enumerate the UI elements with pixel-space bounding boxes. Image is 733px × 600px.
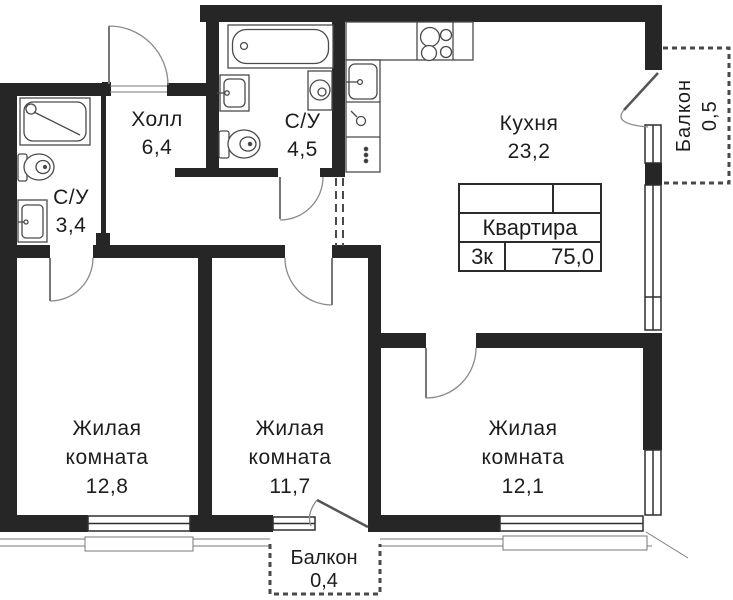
room-label-living-left: Жилая комната 12,8 xyxy=(33,414,181,501)
washer-door-inner xyxy=(318,88,326,96)
living-left-name-1: Жилая xyxy=(33,414,181,443)
kitchen-balcony-door-arc xyxy=(621,110,648,127)
hall-name: Холл xyxy=(95,106,219,134)
stove-burner-small xyxy=(441,30,452,41)
bathroom-large-name: С/У xyxy=(255,108,350,136)
living-right-area: 12,1 xyxy=(449,472,597,501)
toilet-su34 xyxy=(18,154,54,181)
living-middle-area: 11,7 xyxy=(216,472,364,501)
floor-plan-drawing xyxy=(0,0,733,600)
living-middle-name-2: комната xyxy=(216,443,364,472)
apartment-rooms-count: 3к xyxy=(460,243,506,270)
living-right-name-1: Жилая xyxy=(449,414,597,443)
open-boundary-dashed xyxy=(336,178,343,246)
room-label-balcony-bottom: Балкон 0,4 xyxy=(268,547,380,593)
kitchen-area: 23,2 xyxy=(468,138,590,166)
toilet-drain xyxy=(248,142,251,145)
balcony-bottom-area: 0,4 xyxy=(268,570,380,593)
wall-bottom-c xyxy=(368,515,500,532)
shower-tray xyxy=(20,98,90,145)
room-label-kitchen: Кухня 23,2 xyxy=(468,110,590,166)
stove-burner-small xyxy=(441,47,452,58)
ledge-room-right xyxy=(503,536,647,550)
wall-top xyxy=(200,5,662,22)
room-label-living-middle: Жилая комната 11,7 xyxy=(216,414,364,501)
sink-su45 xyxy=(217,75,249,111)
info-table-blank-row xyxy=(460,185,600,214)
bathtub xyxy=(228,25,333,68)
apartment-total-area: 75,0 xyxy=(506,243,600,270)
wall-right-mid xyxy=(645,163,662,185)
room-label-bathroom-small: С/У 3,4 xyxy=(24,184,118,240)
kitchen-name: Кухня xyxy=(468,110,590,138)
info-table-values-row: 3к 75,0 xyxy=(460,243,600,270)
living-right-name-2: комната xyxy=(449,443,597,472)
apartment-info-table: Квартира 3к 75,0 xyxy=(458,183,602,272)
wall-left xyxy=(0,83,17,532)
kitchen-faucet-knob xyxy=(358,80,363,85)
wall-right-room121 xyxy=(643,333,662,450)
bathtub-drain xyxy=(241,43,248,50)
su45-door-arc xyxy=(280,177,323,220)
living-left-area: 12,8 xyxy=(33,472,181,501)
entry-threshold xyxy=(110,86,167,92)
balcony-right-text: Балкон 0,5 xyxy=(671,79,723,152)
faucet-knob xyxy=(225,91,229,95)
bathroom-small-area: 3,4 xyxy=(24,212,118,240)
water-heater-drop-icon xyxy=(357,117,366,126)
kitchen-counter-left xyxy=(346,60,380,172)
wall-middle xyxy=(368,245,381,532)
toilet-su45 xyxy=(219,130,260,158)
wall-bottom-a xyxy=(0,515,88,532)
entry-door-arc xyxy=(109,26,168,85)
bathroom-small-name: С/У xyxy=(24,184,118,212)
info-table-title-row: Квартира xyxy=(460,214,600,243)
washing-machine xyxy=(308,71,332,110)
balcony-right-area: 0,5 xyxy=(697,79,723,152)
room-label-living-right: Жилая комната 12,1 xyxy=(449,414,597,501)
balcony-bottom-name: Балкон xyxy=(268,547,380,570)
kitchen-balcony-door-leaf xyxy=(624,73,658,110)
appliance-dots-icon xyxy=(364,147,367,150)
living-left-name-2: комната xyxy=(33,443,181,472)
room-label-balcony-right: Балкон 0,5 xyxy=(664,48,729,183)
wall-right-upper xyxy=(645,5,662,70)
stove-burner-large xyxy=(421,28,440,47)
wall-su45-bottom xyxy=(175,168,278,177)
room-right-door-arc xyxy=(426,348,476,398)
room-label-hall: Холл 6,4 xyxy=(95,106,219,162)
corner-sill-diagonal xyxy=(646,532,688,558)
wall-su34-top xyxy=(0,83,110,96)
ledge-room-left xyxy=(85,537,193,551)
blank-cell-left xyxy=(460,185,554,212)
blank-cell-right xyxy=(554,185,600,212)
apartment-title: Квартира xyxy=(482,215,577,241)
room-middle-door-arc xyxy=(285,258,332,305)
wall-hall-bottom-a xyxy=(0,245,50,258)
wall-rooms-divider xyxy=(198,245,212,530)
bathroom-large-area: 4,5 xyxy=(255,136,350,164)
balcony-right-name: Балкон xyxy=(671,79,697,152)
room-middle-balcony-door-leaf xyxy=(317,500,368,527)
living-middle-name-1: Жилая xyxy=(216,414,364,443)
wall-room121-top-a xyxy=(381,333,426,348)
wall-hall-bottom-b xyxy=(93,245,285,258)
appliance-dots-icon xyxy=(364,159,367,162)
room-label-bathroom-large: С/У 4,5 xyxy=(255,108,350,164)
wall-bottom-b xyxy=(190,515,273,532)
wall-room121-top-b xyxy=(476,333,645,348)
hall-area: 6,4 xyxy=(95,134,219,162)
room-left-door-arc xyxy=(50,258,93,301)
toilet-drain xyxy=(44,166,47,169)
kitchen-counter-top xyxy=(346,22,473,61)
appliance-dots-icon xyxy=(364,153,367,156)
entry-jamb-left xyxy=(102,82,111,96)
counter xyxy=(346,22,473,60)
stove-burner-large xyxy=(422,46,437,61)
floor-plan: Холл 6,4 С/У 4,5 С/У 3,4 Кухня 23,2 Жила… xyxy=(0,0,733,600)
